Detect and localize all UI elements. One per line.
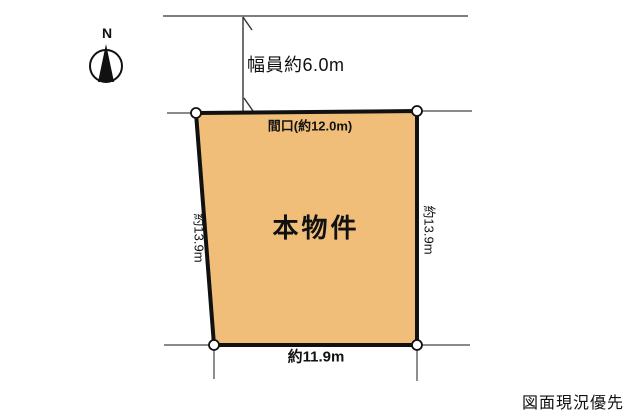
- north-compass-icon: [90, 44, 122, 82]
- site-plan-diagram: N 幅員約6.0m 間口(約12.0m) 約13.9m 約13.9m 本物件 約…: [0, 0, 628, 420]
- corner-marker-bottom-right: [412, 340, 422, 350]
- corner-marker-bottom-left: [209, 340, 219, 350]
- drawing-priority-note: 図面現況優先: [522, 396, 624, 412]
- bottom-width-dimension-label: 約11.9m: [288, 350, 345, 365]
- corner-marker-top-left: [191, 108, 201, 118]
- arrowhead-down: [244, 98, 253, 111]
- frontage-dimension-label: 間口(約12.0m): [268, 120, 353, 133]
- left-depth-dimension-label: 約13.9m: [193, 213, 206, 262]
- north-arrow: [98, 44, 114, 82]
- parcel-name-label: 本物件: [272, 215, 359, 241]
- road-width-label: 幅員約6.0m: [247, 56, 345, 74]
- right-depth-dimension-label: 約13.9m: [423, 205, 436, 254]
- corner-marker-top-right: [412, 106, 422, 116]
- compass-north-label: N: [102, 26, 112, 40]
- arrowhead-up: [243, 17, 252, 30]
